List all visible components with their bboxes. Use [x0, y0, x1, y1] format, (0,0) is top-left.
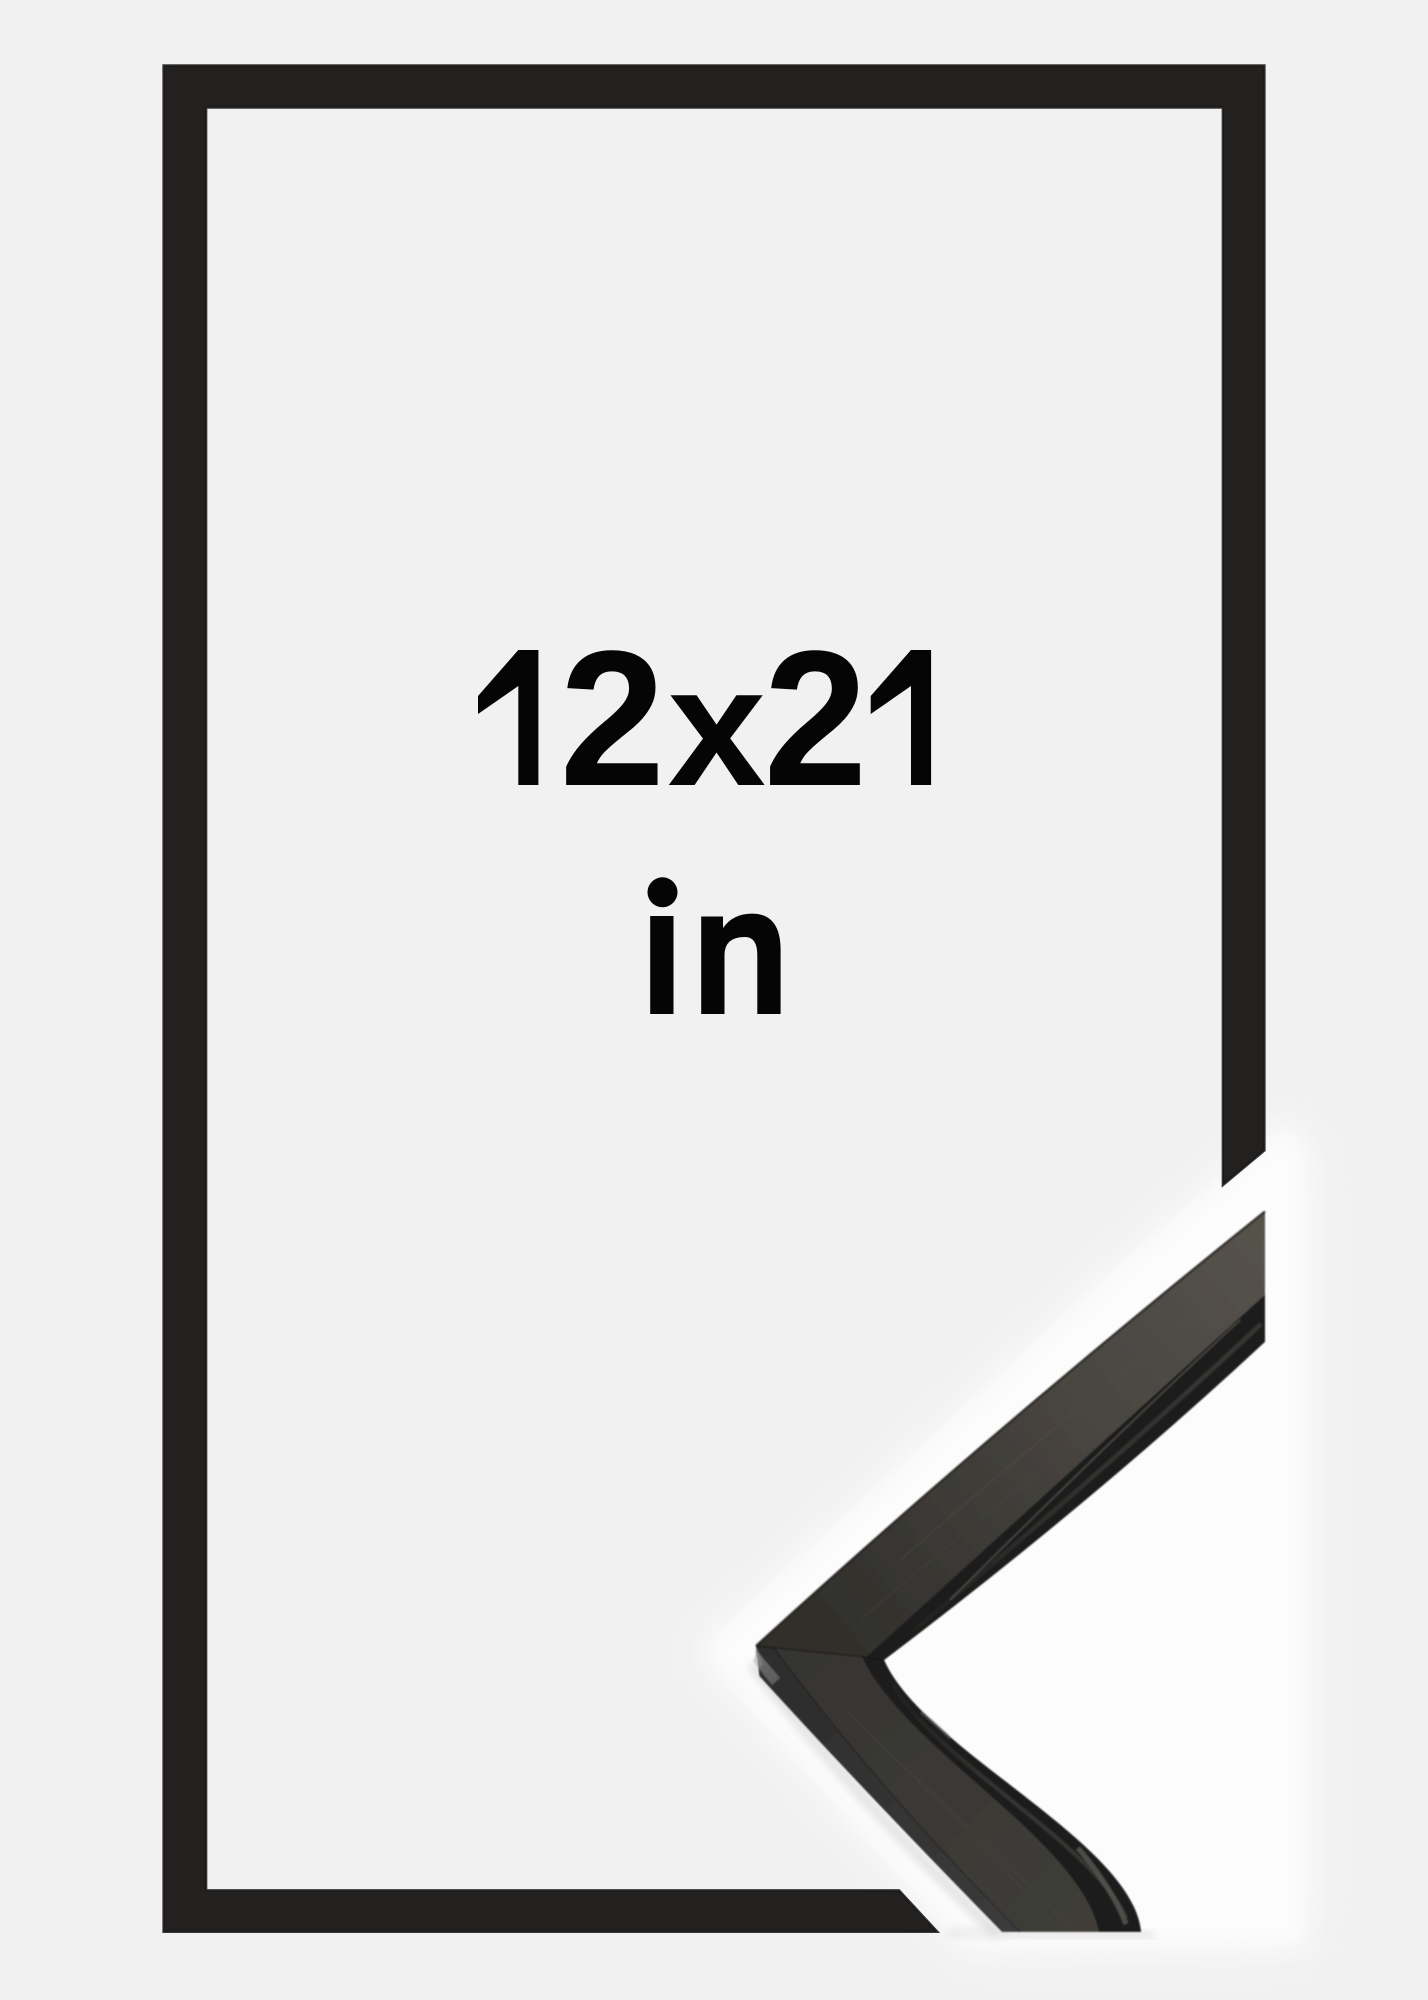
svg-text:x: x	[668, 631, 766, 821]
svg-text:2: 2	[560, 611, 666, 827]
svg-text:2: 2	[764, 611, 868, 827]
